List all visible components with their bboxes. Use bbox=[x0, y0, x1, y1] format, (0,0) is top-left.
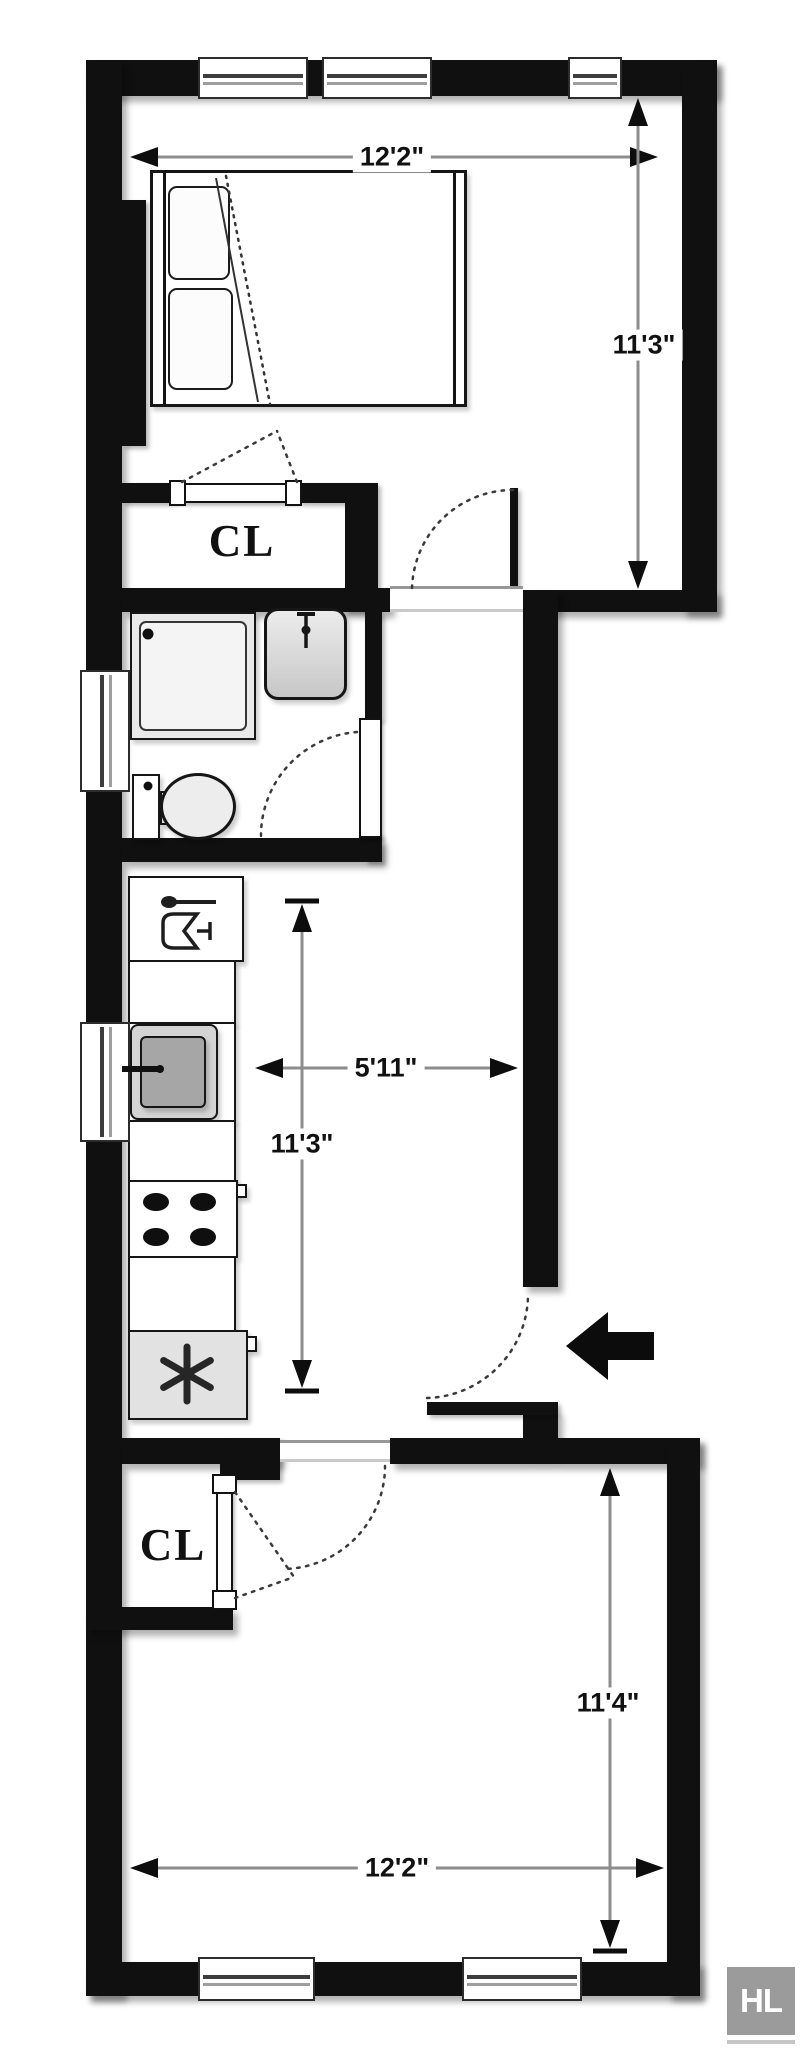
window-top-2 bbox=[322, 57, 432, 99]
living-closet-door bbox=[216, 1478, 233, 1607]
dim-label-bedroom-width: 12'2" bbox=[353, 142, 431, 173]
floor-plan-canvas: 12'2" 11'3" 5'11" 11'3" 11'4" 12'2" CL C… bbox=[0, 0, 800, 2050]
refrigerator bbox=[128, 1330, 248, 1420]
bedroom-door-leaf bbox=[510, 488, 518, 590]
shower-stall bbox=[130, 612, 256, 740]
window-top-1 bbox=[198, 57, 308, 99]
bedroom-door-swing-arc bbox=[412, 490, 513, 591]
entry-door-swing-arc bbox=[427, 1296, 528, 1398]
living-door-swing-arc bbox=[282, 1466, 385, 1569]
bed-pillow-top bbox=[168, 186, 230, 280]
window-bottom-2 bbox=[462, 1957, 582, 2001]
window-top-3 bbox=[568, 57, 622, 99]
wall-living-top-right bbox=[390, 1438, 700, 1464]
bed-headboard-line bbox=[163, 172, 166, 405]
living-closet-swing-lines bbox=[235, 1492, 294, 1598]
bed-pillow-bottom bbox=[168, 288, 233, 390]
wall-closet-top-b bbox=[298, 483, 345, 503]
wall-bath-right-upper bbox=[365, 612, 382, 720]
bedroom-closet-label: CL bbox=[209, 515, 276, 567]
bathroom-door-swing-arc bbox=[261, 732, 357, 836]
bathroom-sink bbox=[264, 608, 347, 700]
hl-logo-tagline-bar bbox=[727, 2040, 795, 2044]
entry-arrow-icon bbox=[566, 1312, 654, 1380]
wall-right-lower bbox=[667, 1438, 700, 1996]
wall-bottom bbox=[86, 1962, 700, 1996]
window-left-kitchen bbox=[80, 1022, 130, 1142]
wall-living-closet-bottom bbox=[86, 1607, 233, 1630]
dishwasher bbox=[128, 876, 244, 962]
bedroom-closet-door-hinge-right bbox=[285, 480, 302, 506]
living-closet-door-hinge-bottom bbox=[212, 1590, 237, 1610]
window-left-bathroom bbox=[80, 670, 130, 792]
kitchen-counter-3 bbox=[128, 1256, 236, 1332]
wall-left-pilaster bbox=[122, 200, 146, 446]
bedroom-closet-door bbox=[173, 483, 298, 503]
wall-bedroom-bottom bbox=[122, 588, 390, 612]
bathroom-door-leaf bbox=[359, 718, 382, 838]
dim-label-living-width: 12'2" bbox=[358, 1853, 436, 1884]
refrigerator-handle bbox=[246, 1336, 257, 1352]
stove bbox=[128, 1180, 238, 1258]
bedroom-doorway-threshold bbox=[390, 586, 523, 612]
living-closet-door-hinge-top bbox=[212, 1474, 237, 1494]
hl-logo: HL bbox=[727, 1967, 795, 2035]
wall-closet-top-a bbox=[122, 483, 173, 503]
kitchen-counter-2 bbox=[128, 1120, 236, 1182]
wall-bath-bottom bbox=[122, 838, 382, 862]
kitchen-counter-1 bbox=[128, 960, 236, 1024]
dim-label-living-depth: 11'4" bbox=[570, 1688, 647, 1719]
wall-hall-right bbox=[523, 590, 558, 1287]
dim-label-kitchen-depth: 11'3" bbox=[264, 1129, 341, 1160]
toilet-tank bbox=[132, 774, 160, 840]
window-bottom-1 bbox=[198, 1957, 315, 2001]
wall-right-upper bbox=[682, 60, 717, 612]
kitchen-sink-basin-inner bbox=[140, 1036, 206, 1108]
toilet-bowl bbox=[160, 773, 236, 840]
dim-label-bedroom-depth: 11'3" bbox=[606, 330, 683, 361]
living-closet-label: CL bbox=[140, 1519, 207, 1571]
bed-footboard-line bbox=[453, 172, 456, 405]
stove-handle bbox=[236, 1184, 247, 1198]
bedroom-closet-swing-lines bbox=[182, 431, 297, 482]
bedroom-closet-door-hinge-left bbox=[169, 480, 186, 506]
entry-door-leaf bbox=[427, 1402, 558, 1415]
hl-logo-monogram: HL bbox=[740, 1982, 782, 2020]
dim-label-hall-width: 5'11" bbox=[348, 1053, 425, 1084]
living-doorway-threshold bbox=[280, 1440, 390, 1462]
